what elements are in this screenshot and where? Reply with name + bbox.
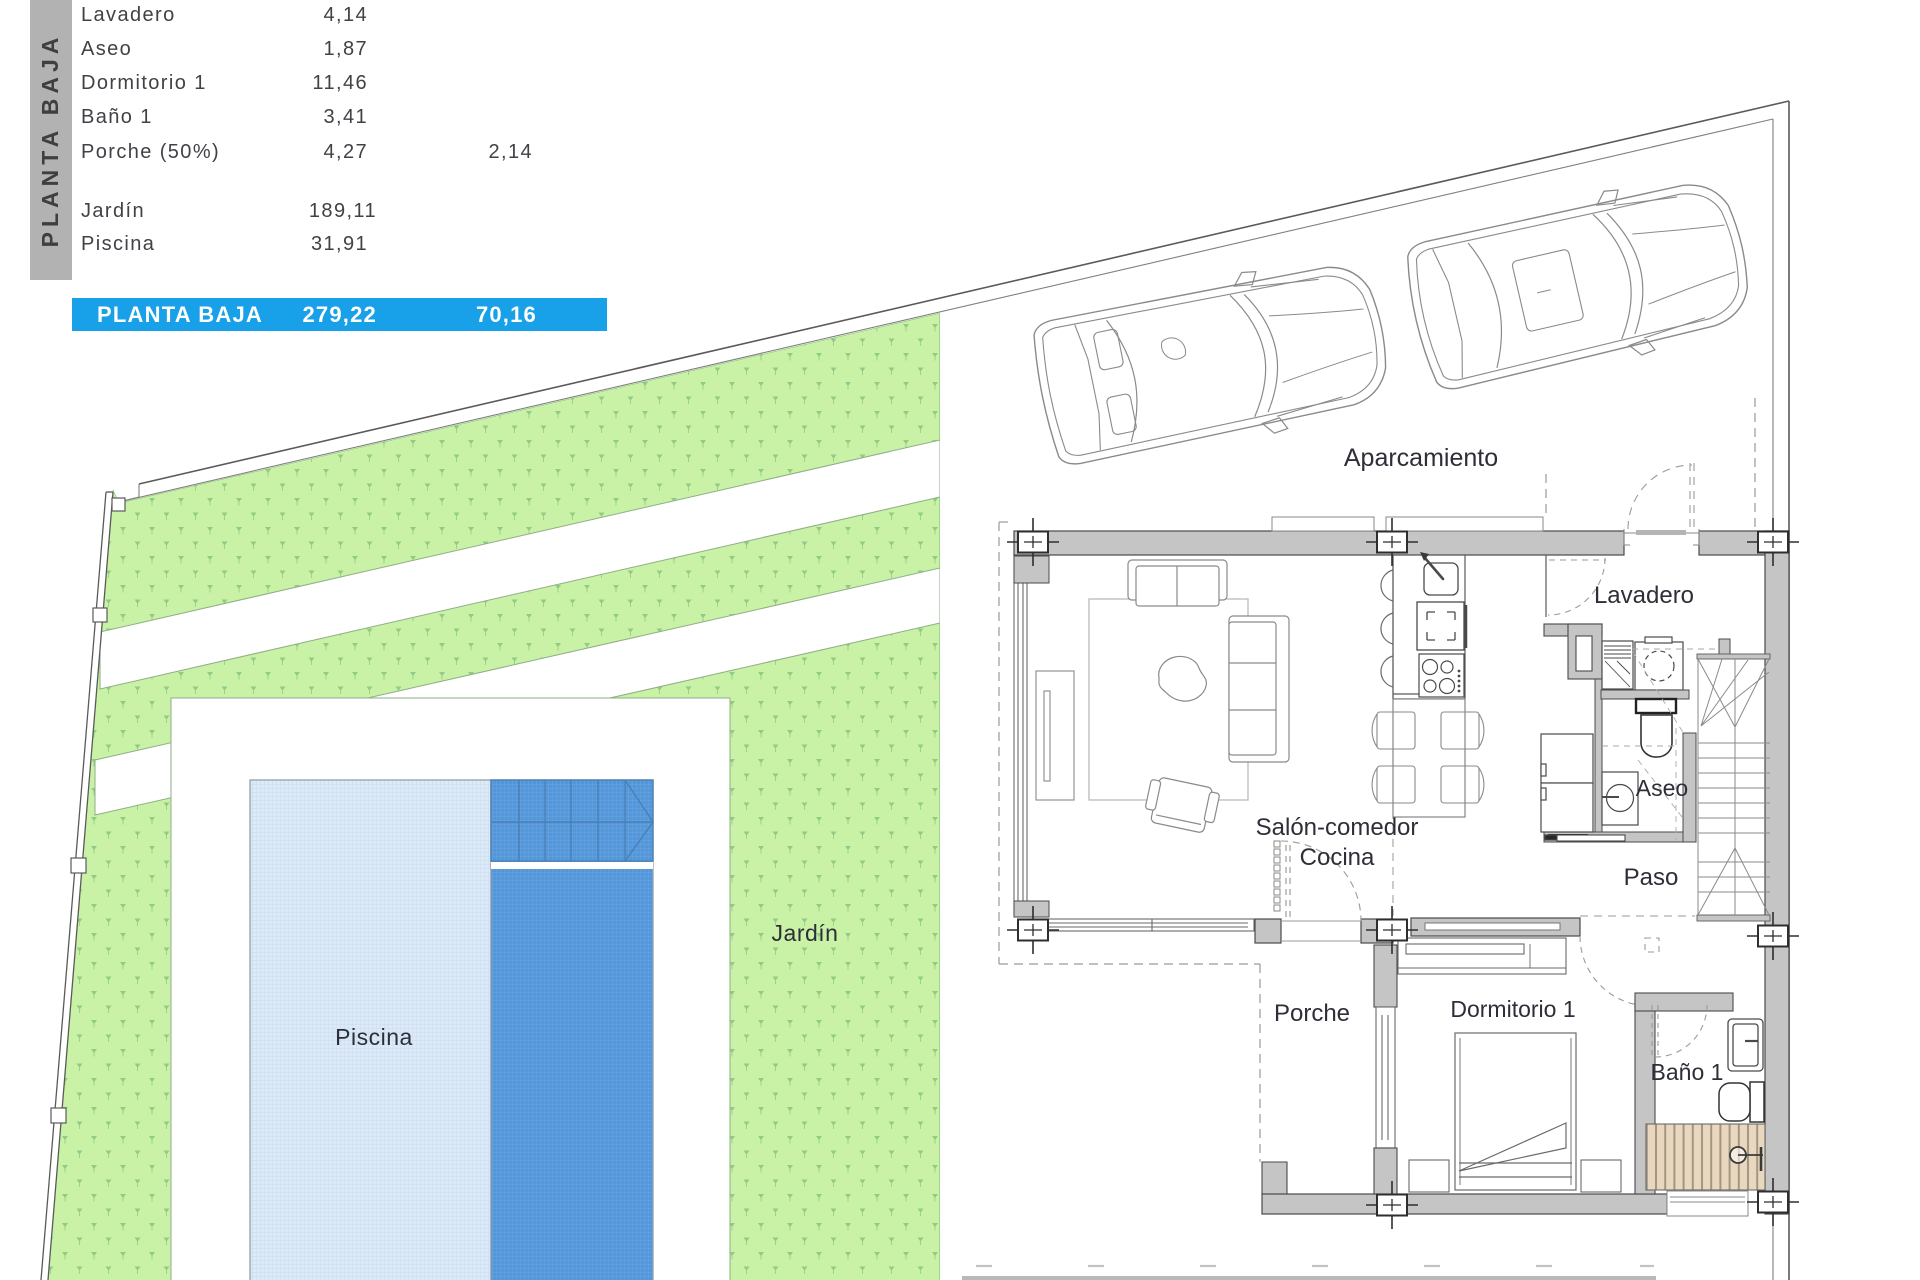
svg-text:189,11: 189,11: [309, 200, 377, 222]
svg-text:11,46: 11,46: [312, 72, 368, 94]
svg-text:Cocina: Cocina: [1300, 844, 1375, 871]
svg-text:Aseo: Aseo: [1636, 775, 1688, 801]
svg-text:Aparcamiento: Aparcamiento: [1344, 444, 1498, 472]
svg-text:Dormitorio 1: Dormitorio 1: [1450, 996, 1575, 1022]
svg-text:31,91: 31,91: [311, 233, 368, 255]
svg-text:Lavadero: Lavadero: [1594, 582, 1694, 609]
svg-text:2,14: 2,14: [488, 141, 533, 163]
svg-text:Porche: Porche: [1274, 1000, 1350, 1027]
svg-text:Jardín: Jardín: [81, 200, 145, 222]
svg-text:4,27: 4,27: [323, 141, 368, 163]
svg-text:Piscina: Piscina: [81, 233, 155, 255]
svg-text:Aseo: Aseo: [81, 38, 132, 60]
svg-text:1,87: 1,87: [323, 38, 368, 60]
svg-text:Jardín: Jardín: [772, 920, 839, 946]
svg-text:Baño 1: Baño 1: [1651, 1059, 1724, 1085]
svg-text:Piscina: Piscina: [335, 1024, 413, 1050]
svg-text:4,14: 4,14: [323, 4, 368, 26]
svg-text:Dormitorio 1: Dormitorio 1: [81, 72, 207, 94]
svg-text:PLANTA BAJA: PLANTA BAJA: [37, 33, 63, 248]
svg-text:Salón-comedor: Salón-comedor: [1256, 814, 1419, 841]
svg-text:70,16: 70,16: [476, 302, 537, 327]
svg-text:Lavadero: Lavadero: [81, 4, 176, 26]
svg-text:279,22: 279,22: [303, 302, 378, 327]
svg-text:3,41: 3,41: [323, 106, 368, 128]
svg-text:Porche (50%): Porche (50%): [81, 141, 220, 163]
svg-text:Paso: Paso: [1624, 864, 1679, 891]
svg-text:PLANTA BAJA: PLANTA BAJA: [97, 302, 263, 327]
svg-text:Baño 1: Baño 1: [81, 106, 153, 128]
